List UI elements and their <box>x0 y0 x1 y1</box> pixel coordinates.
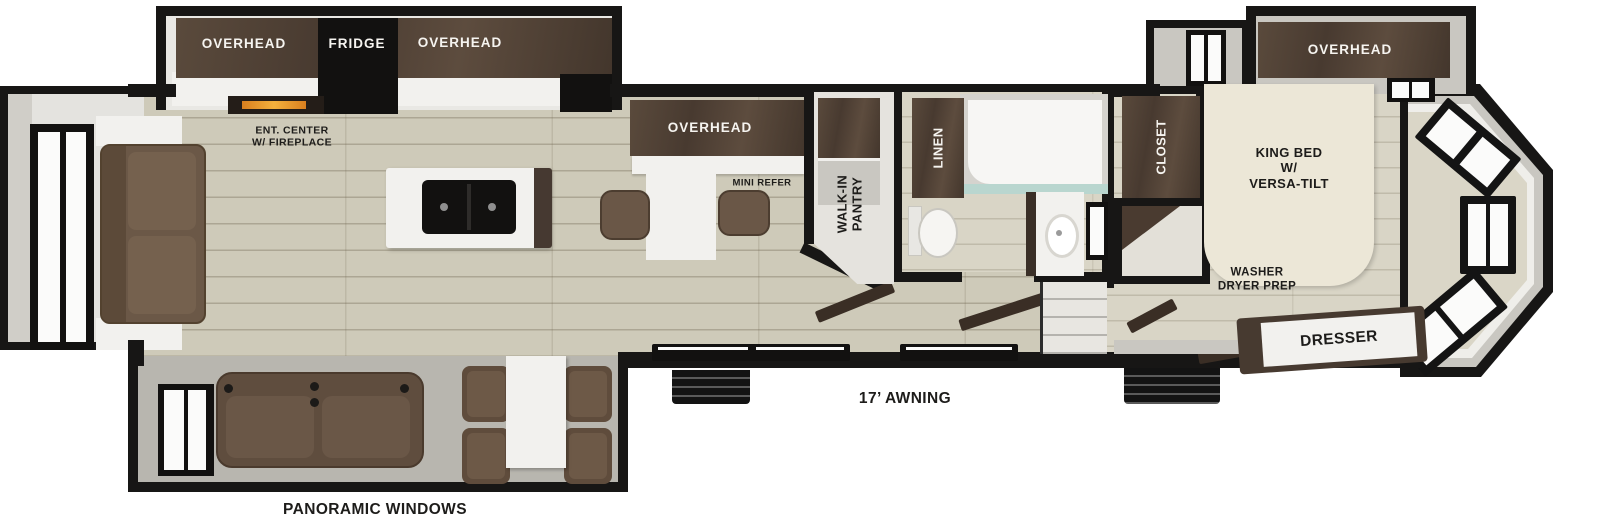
toilet <box>918 208 958 258</box>
label-awning: 17’ AWNING <box>859 390 951 408</box>
label-king-bed: KING BED W/ VERSA-TILT <box>1249 145 1329 191</box>
panoramic-slide-window <box>158 384 214 476</box>
cooktop <box>560 74 612 112</box>
bedroom-side-window <box>1186 30 1226 86</box>
label-ent-center: ENT. CENTER W/ FIREPLACE <box>252 125 332 150</box>
door-side-window <box>900 344 1018 361</box>
double-sink <box>422 180 516 234</box>
mini-refer-counter <box>646 156 716 260</box>
door-side-window <box>652 344 850 361</box>
pantry-wall <box>804 92 814 244</box>
dinette-table <box>506 356 566 468</box>
label-closet: CLOSET <box>1153 119 1168 174</box>
bar-stool <box>718 190 770 236</box>
bathroom-window <box>1086 202 1108 260</box>
dinette-chair <box>564 428 612 484</box>
label-overhead-left: OVERHEAD <box>202 36 287 52</box>
end-table-top <box>96 116 182 146</box>
label-panoramic-windows: PANORAMIC WINDOWS <box>283 501 467 519</box>
dresser: DRESSER <box>1236 301 1430 376</box>
pantry-cabinet <box>818 98 880 158</box>
dinette-chair <box>462 428 510 484</box>
label-walk-in-pantry: WALK-IN PANTRY <box>835 175 866 233</box>
theater-seating <box>216 372 424 468</box>
entry-steps <box>1124 368 1220 404</box>
sofa <box>100 144 206 324</box>
fireplace-glow <box>242 101 306 109</box>
label-fridge: FRIDGE <box>328 36 385 52</box>
bedroom-stairs <box>1040 282 1107 354</box>
rv-floorplan: DRESSER OVERHEAD FRIDGE OVERHEAD ENT. CE… <box>0 0 1600 524</box>
label-overhead-bedroom: OVERHEAD <box>1308 42 1393 58</box>
label-overhead-mid: OVERHEAD <box>668 120 753 136</box>
washer-dryer-closet <box>1114 198 1210 284</box>
label-mini-refer: MINI REFER <box>733 177 792 188</box>
cap-window-middle <box>1460 196 1516 274</box>
label-linen: LINEN <box>930 128 945 169</box>
dinette-chair <box>564 366 612 422</box>
label-overhead-right: OVERHEAD <box>418 35 503 51</box>
entry-steps <box>672 370 750 404</box>
sofa-slide-window <box>30 124 94 350</box>
fridge <box>318 18 398 114</box>
shower <box>960 94 1108 194</box>
label-washer-dryer-prep: WASHER DRYER PREP <box>1218 266 1296 293</box>
bathroom-vanity <box>1036 192 1084 276</box>
bedroom-window <box>1387 78 1435 102</box>
dinette-chair <box>462 366 510 422</box>
bar-stool <box>600 190 650 240</box>
